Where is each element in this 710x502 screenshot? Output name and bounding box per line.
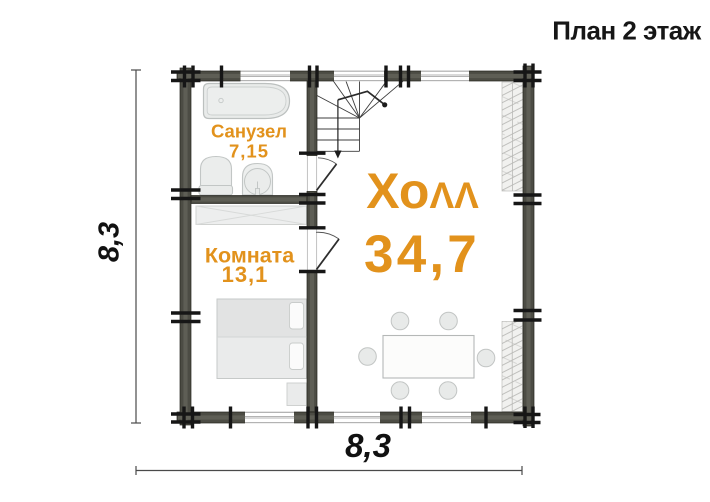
svg-text:Санузел: Санузел [211,120,287,141]
svg-text:13,1: 13,1 [222,262,269,287]
svg-text:34,7: 34,7 [364,225,480,284]
svg-text:8,3: 8,3 [94,222,126,262]
svg-text:План 2 этаж: План 2 этаж [552,16,701,46]
svg-text:7,15: 7,15 [229,141,269,162]
svg-text:8,3: 8,3 [345,427,391,464]
